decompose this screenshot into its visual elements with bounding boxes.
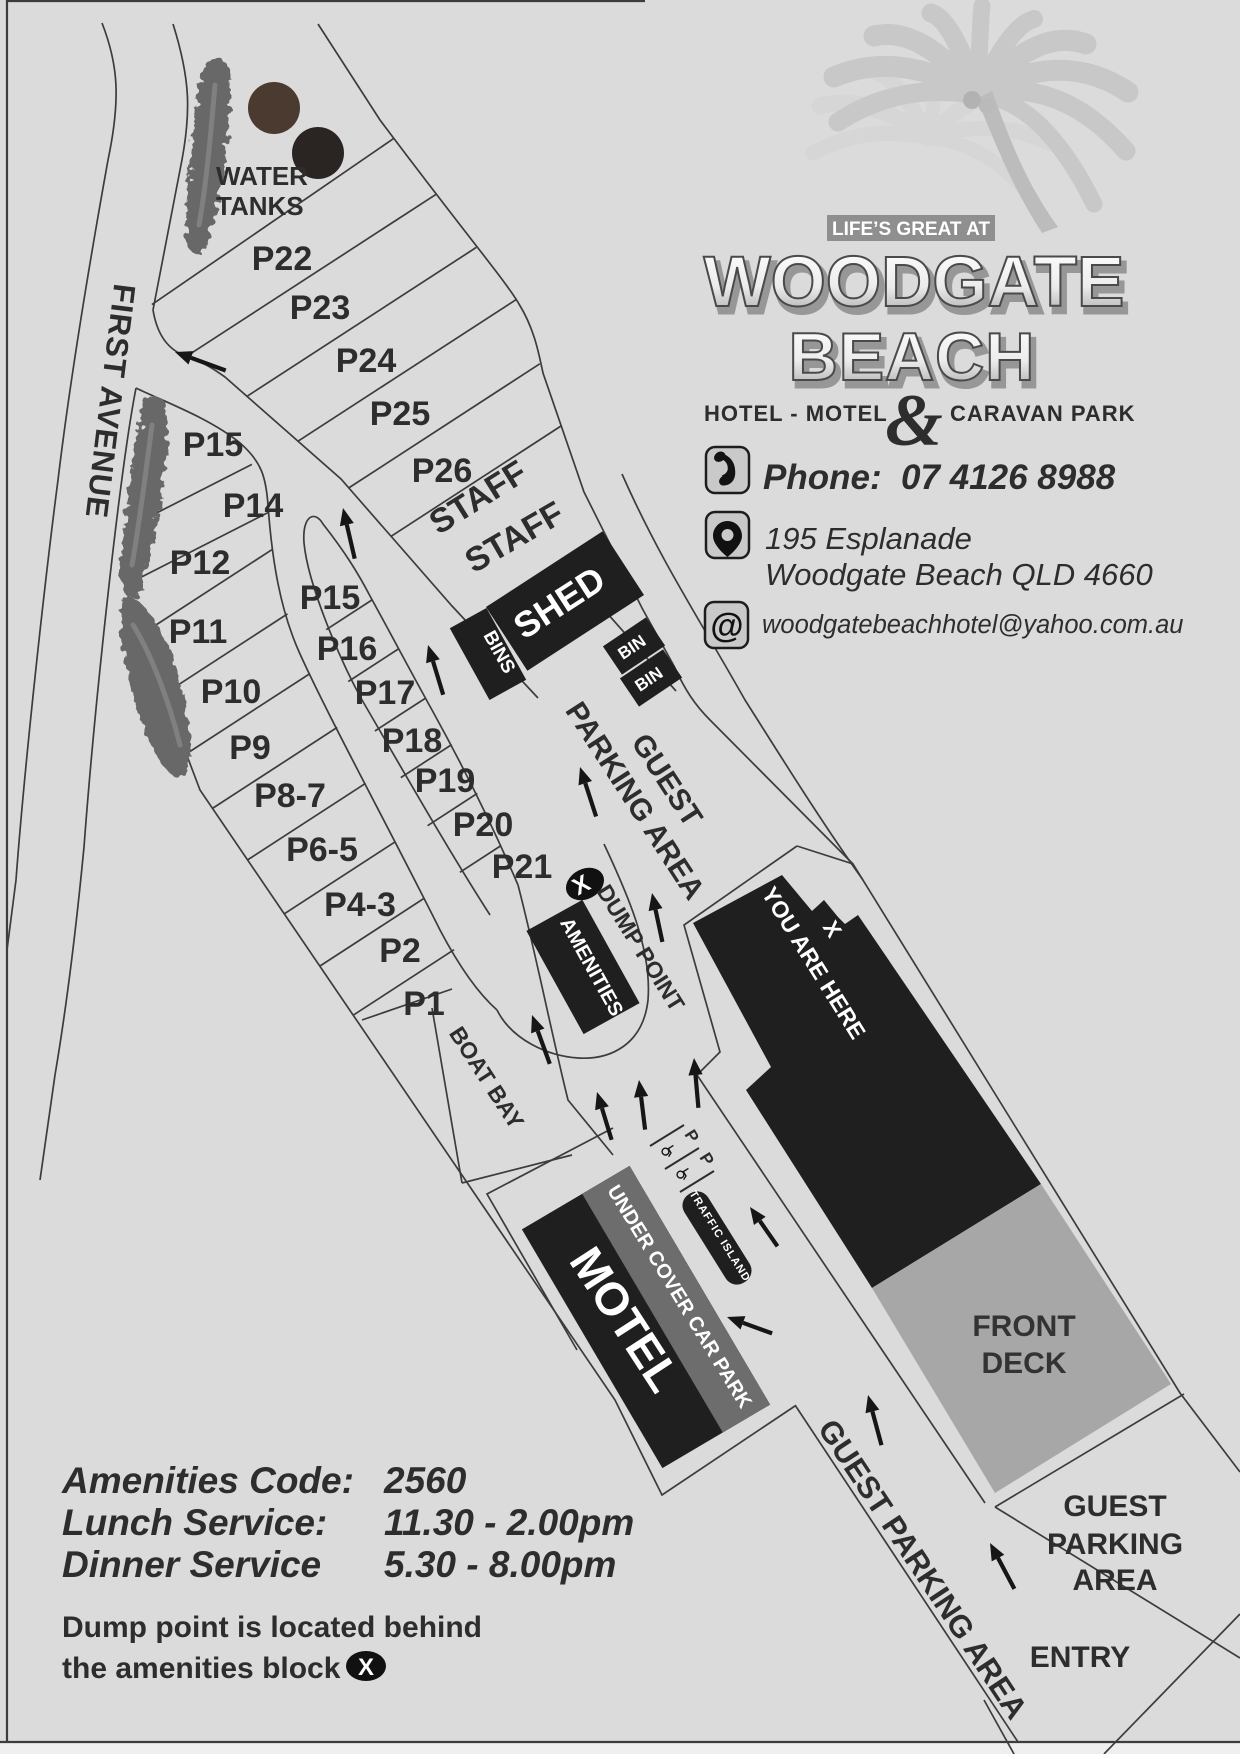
svg-text:P23: P23 — [290, 289, 351, 327]
svg-text:CARAVAN PARK: CARAVAN PARK — [950, 401, 1136, 426]
svg-text:P21: P21 — [492, 848, 553, 886]
svg-text:P2: P2 — [379, 932, 421, 970]
svg-text:WOODGATE: WOODGATE — [704, 243, 1125, 322]
svg-text:P15: P15 — [183, 426, 244, 464]
svg-text:woodgatebeachhotel@yahoo.com.a: woodgatebeachhotel@yahoo.com.au — [762, 611, 1183, 639]
svg-text:P12: P12 — [170, 544, 231, 582]
svg-text:P24: P24 — [336, 342, 397, 380]
svg-text:P10: P10 — [201, 673, 262, 711]
svg-text:Amenities Code:: Amenities Code: — [61, 1460, 354, 1501]
svg-text:P14: P14 — [223, 487, 284, 525]
svg-text:DECK: DECK — [981, 1347, 1066, 1380]
svg-text:HOTEL - MOTEL: HOTEL - MOTEL — [704, 401, 888, 426]
svg-text:11.30 - 2.00pm: 11.30 - 2.00pm — [384, 1502, 634, 1543]
svg-text:P9: P9 — [229, 729, 271, 767]
svg-text:ENTRY: ENTRY — [1030, 1641, 1131, 1674]
svg-text:TANKS: TANKS — [216, 191, 304, 221]
svg-text:P15: P15 — [300, 579, 361, 617]
svg-text:P8-7: P8-7 — [254, 777, 326, 815]
svg-text:P20: P20 — [453, 806, 514, 844]
svg-text:Dump point is located behind: Dump point is located behind — [62, 1611, 482, 1644]
svg-text:P19: P19 — [415, 762, 476, 800]
svg-text:Lunch Service:: Lunch Service: — [62, 1502, 327, 1543]
svg-text:WATER: WATER — [216, 161, 308, 191]
svg-text:P1: P1 — [403, 985, 445, 1023]
svg-text:P4-3: P4-3 — [324, 886, 396, 924]
svg-text:P17: P17 — [355, 674, 416, 712]
svg-text:X: X — [358, 1654, 374, 1681]
svg-text:GUEST: GUEST — [1063, 1490, 1166, 1523]
svg-text:P25: P25 — [370, 395, 431, 433]
svg-text:P18: P18 — [382, 722, 443, 760]
svg-text:&: & — [885, 380, 943, 462]
svg-text:PARKING: PARKING — [1047, 1528, 1183, 1561]
svg-text:5.30 - 8.00pm: 5.30 - 8.00pm — [384, 1544, 616, 1585]
svg-text:Dinner Service: Dinner Service — [62, 1544, 321, 1585]
svg-text:P16: P16 — [317, 630, 378, 668]
svg-text:@: @ — [710, 607, 743, 645]
svg-text:P6-5: P6-5 — [286, 831, 358, 869]
svg-text:P22: P22 — [252, 240, 313, 278]
svg-text:Woodgate Beach QLD 4660: Woodgate Beach QLD 4660 — [765, 557, 1153, 592]
svg-text:FRONT: FRONT — [972, 1310, 1075, 1343]
svg-text:2560: 2560 — [383, 1460, 467, 1501]
svg-text:195 Esplanade: 195 Esplanade — [765, 521, 972, 556]
svg-text:P11: P11 — [169, 613, 228, 651]
svg-text:LIFE’S GREAT AT: LIFE’S GREAT AT — [832, 219, 990, 240]
svg-text:AREA: AREA — [1072, 1564, 1157, 1597]
svg-text:Phone: 07 4126 8988: Phone: 07 4126 8988 — [763, 458, 1116, 497]
svg-text:the amenities block: the amenities block — [62, 1652, 341, 1685]
